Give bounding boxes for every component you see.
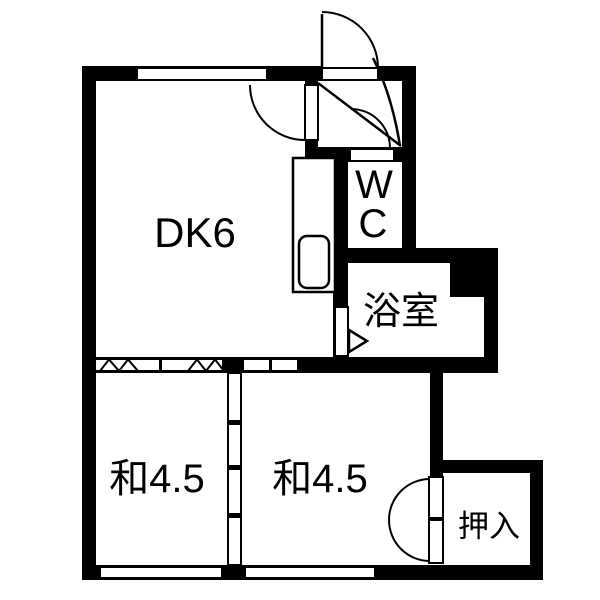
fusuma-tick-1	[228, 420, 241, 425]
label-washitsu-right: 和4.5	[272, 457, 368, 501]
label-wc-line2: C	[359, 202, 388, 246]
label-oshiire: 押入	[458, 509, 520, 544]
wall-right-mid	[430, 373, 443, 478]
floor-plan: DK6 W C 浴室 和4.5 和4.5 押入	[0, 0, 600, 600]
sliding-door-panel-1	[243, 359, 270, 371]
bath-corner-pillar	[450, 263, 498, 297]
accordion-panel-divider	[159, 359, 162, 371]
wall-wc-bottom	[333, 248, 498, 263]
label-washitsu-left: 和4.5	[109, 457, 205, 501]
sliding-door-panel-2	[271, 359, 298, 371]
label-dk: DK6	[154, 209, 236, 256]
kitchen-sink	[299, 236, 329, 288]
wall-oshiire-top	[443, 460, 543, 473]
fusuma-tick-3	[228, 513, 241, 518]
window-top	[137, 68, 267, 80]
wall-left	[82, 66, 96, 580]
bath-door-leaf	[335, 307, 348, 356]
oshiire-door-divider	[429, 517, 443, 521]
entry-threshold	[322, 68, 378, 80]
wall-right-upper	[402, 66, 416, 263]
wc-door-leaf	[350, 149, 394, 161]
label-bath: 浴室	[363, 291, 439, 333]
wall-oshiire-right	[530, 473, 543, 580]
label-wc-line1: W	[355, 163, 393, 207]
fusuma-tick-2	[228, 465, 241, 470]
floor-plan-canvas: DK6 W C 浴室 和4.5 和4.5 押入	[0, 0, 600, 600]
window-bottom-right	[245, 567, 375, 578]
window-bottom-left	[100, 567, 222, 578]
dk-door-leaf	[305, 85, 318, 140]
